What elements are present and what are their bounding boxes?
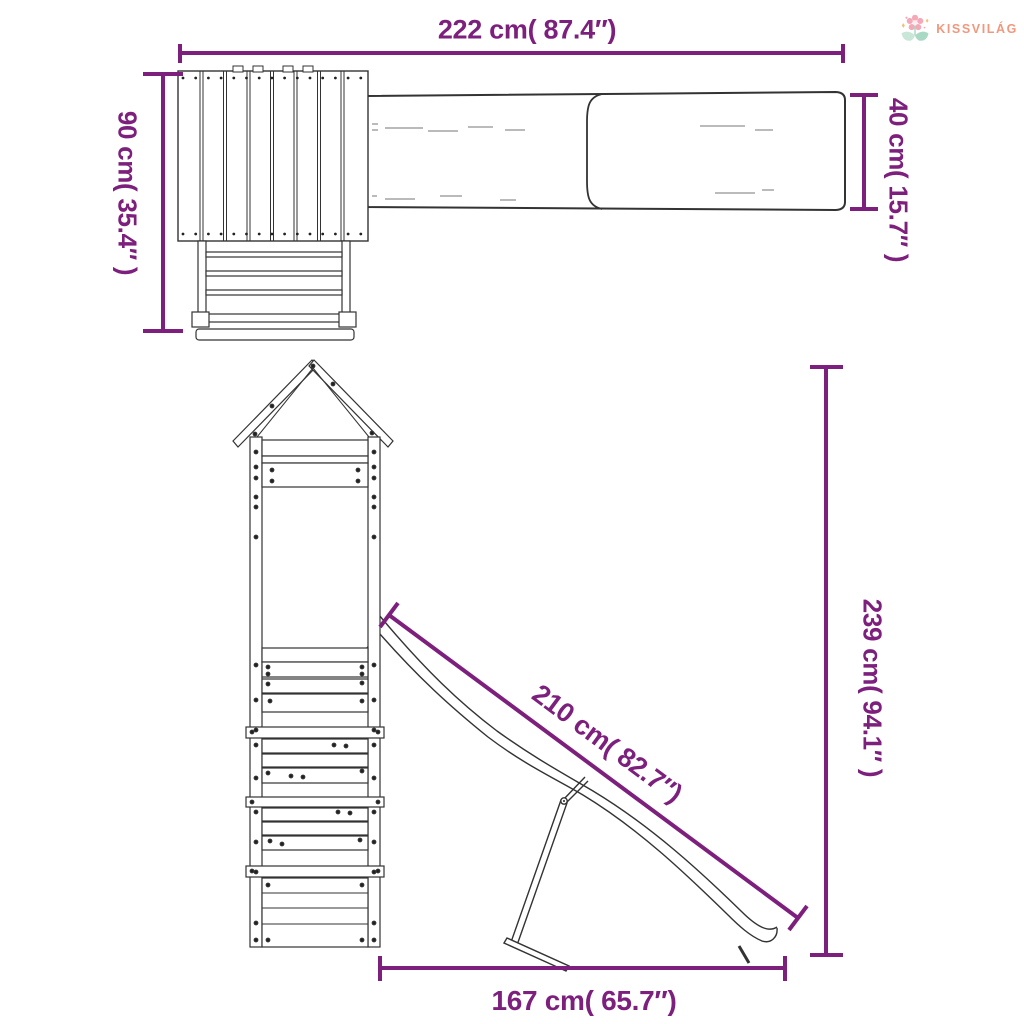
flower-icon [897,11,933,47]
dim-line-slide-width [850,95,878,209]
leaf-left [902,32,916,41]
brand-logo: KISSVILÁG [897,11,1018,47]
leaf-right [915,32,929,41]
flower-center [913,20,918,25]
roof-plan [178,66,368,241]
tower-elevation [233,360,393,947]
top-view [178,66,845,340]
brand-name: KISSVILÁG [936,22,1018,36]
dim-label-height: 239 cm( 94.1″ ) [857,599,888,778]
dim-line-height [810,367,843,955]
dim-line-depth [143,74,183,331]
dim-label-slide-width: 40 cm( 15.7″ ) [883,98,914,262]
side-view [233,360,777,971]
slide-plan [366,92,845,210]
dim-label-width-total: 222 cm( 87.4″) [438,15,616,46]
dim-line-ground-length [380,956,785,981]
slide-elevation [362,615,777,971]
dim-line-slide-length [380,603,807,930]
dim-label-depth: 90 cm( 35.4″ ) [112,111,143,275]
ladder-plan [192,241,356,340]
playset-drawing [0,0,1024,1024]
dim-label-ground-length: 167 cm( 65.7″) [491,985,676,1017]
product-dimension-diagram: 222 cm( 87.4″) 90 cm( 35.4″ ) 40 cm( 15.… [0,0,1024,1024]
dim-line-width-total [180,44,843,63]
